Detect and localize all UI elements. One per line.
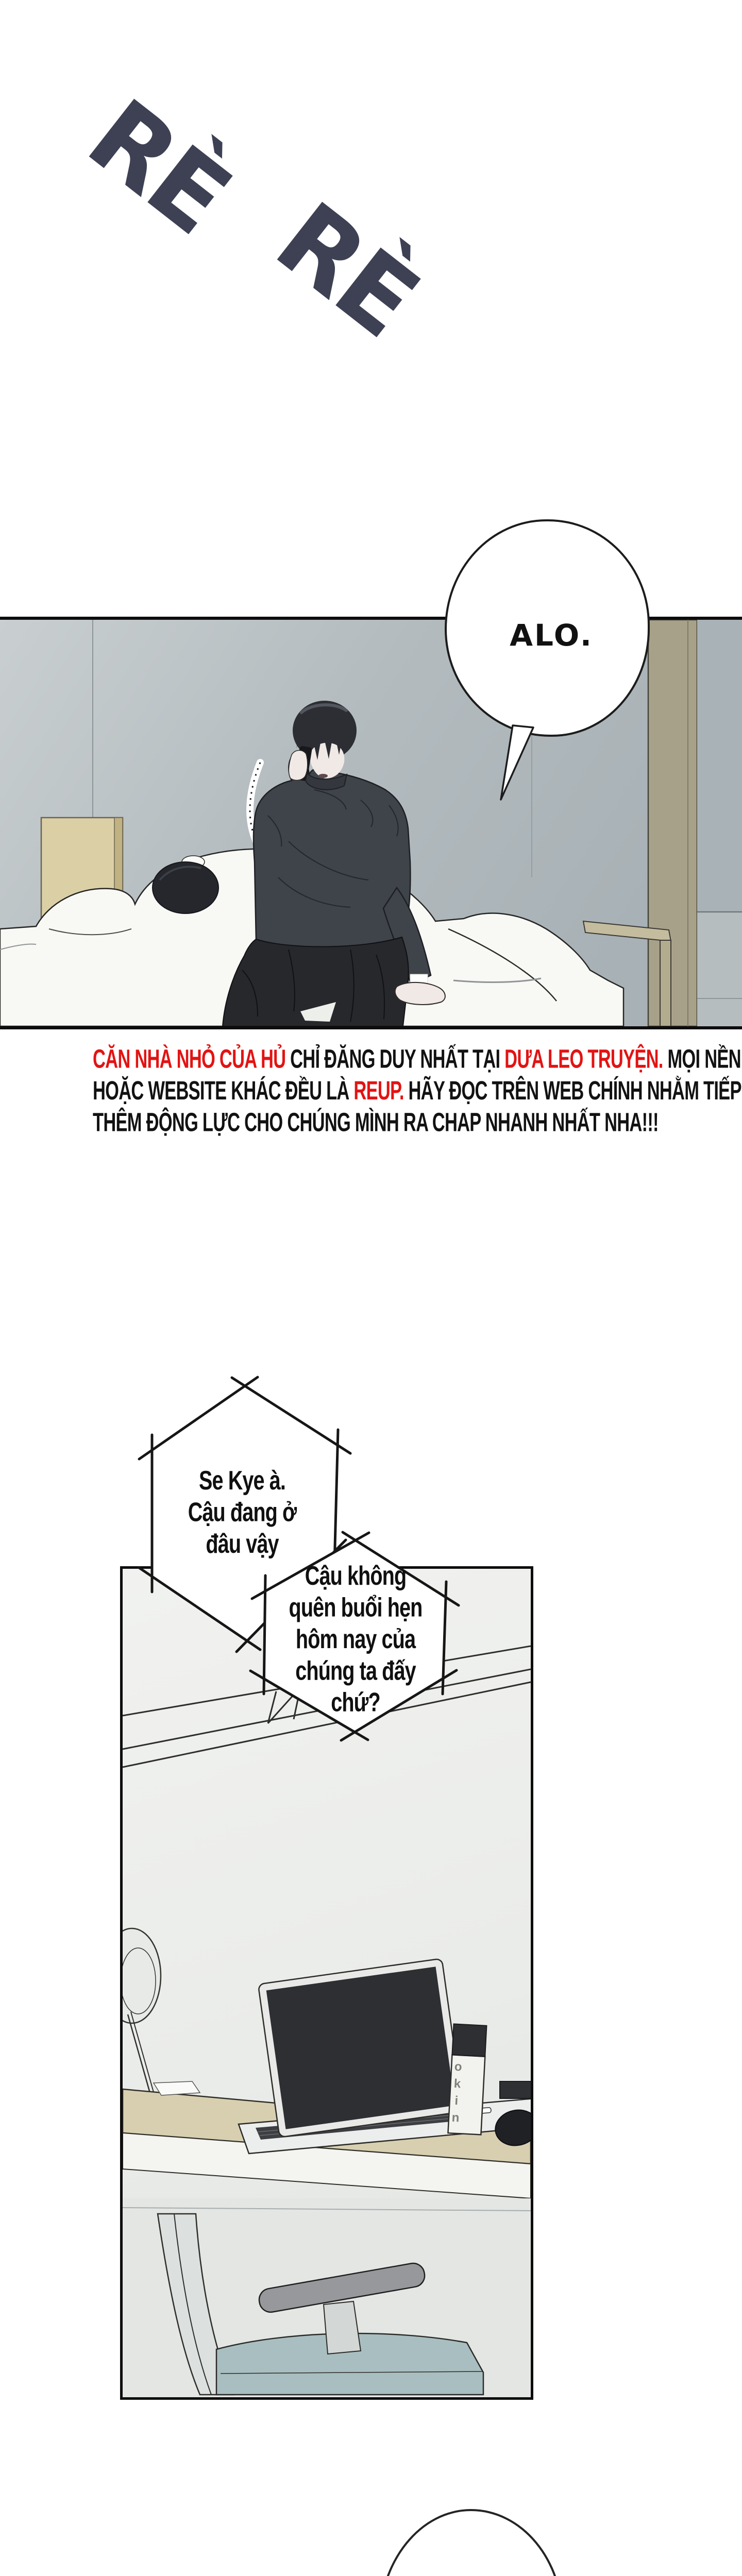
- hand-holding-phone: [289, 750, 307, 780]
- armrest-support: [324, 2301, 361, 2354]
- sfx-re-2: RÈ: [255, 180, 437, 359]
- mouth: [318, 774, 328, 778]
- foot-rail-leg: [660, 940, 671, 1026]
- speech-bubble-alo: ALO.: [445, 519, 650, 737]
- notice-line-3: THÊM ĐỘNG LỰC CHO CHÚNG MÌNH RA CHAP NHA…: [93, 1106, 649, 1138]
- wardrobe-post: [648, 620, 697, 1026]
- speech-bubble-bottom: À...TÔI,: [378, 2509, 564, 2576]
- webtoon-page: RÈ RÈ: [0, 0, 742, 2576]
- notice-line-1: CĂN NHÀ NHỎ CỦA HỦ CHỈ ĐĂNG DUY NHẤT TẠI…: [93, 1043, 649, 1075]
- charger-box: [500, 2081, 531, 2098]
- laptop-screen: [266, 1967, 456, 2129]
- phone-bubble-2-text: Cậu không quên buổi hẹn hôm nay của chún…: [275, 1561, 437, 1719]
- panel1-bottom-border: [0, 1026, 742, 1029]
- speech-bubble-alo-text: ALO.: [510, 618, 593, 653]
- phone-bubble-1-text: Se Kye à. Cậu đang ở đâu vậy: [161, 1465, 324, 1560]
- bottle-cap: [452, 2024, 486, 2056]
- sfx-re-1: RÈ: [67, 77, 249, 256]
- sleeping-person-head: [153, 862, 218, 913]
- desk-lamp: [123, 1928, 164, 2106]
- right-wall-lower: [697, 912, 742, 1026]
- notice-line-2: HOẶC WEBSITE KHÁC ĐỀU LÀ REUP. HÃY ĐỌC T…: [93, 1075, 649, 1107]
- speech-bubble-alo-tail: [492, 720, 544, 808]
- translator-notice: CĂN NHÀ NHỎ CỦA HỦ CHỈ ĐĂNG DUY NHẤT TẠI…: [93, 1043, 649, 1138]
- paper-sheet: [154, 2081, 200, 2095]
- laptop: [239, 1958, 531, 2154]
